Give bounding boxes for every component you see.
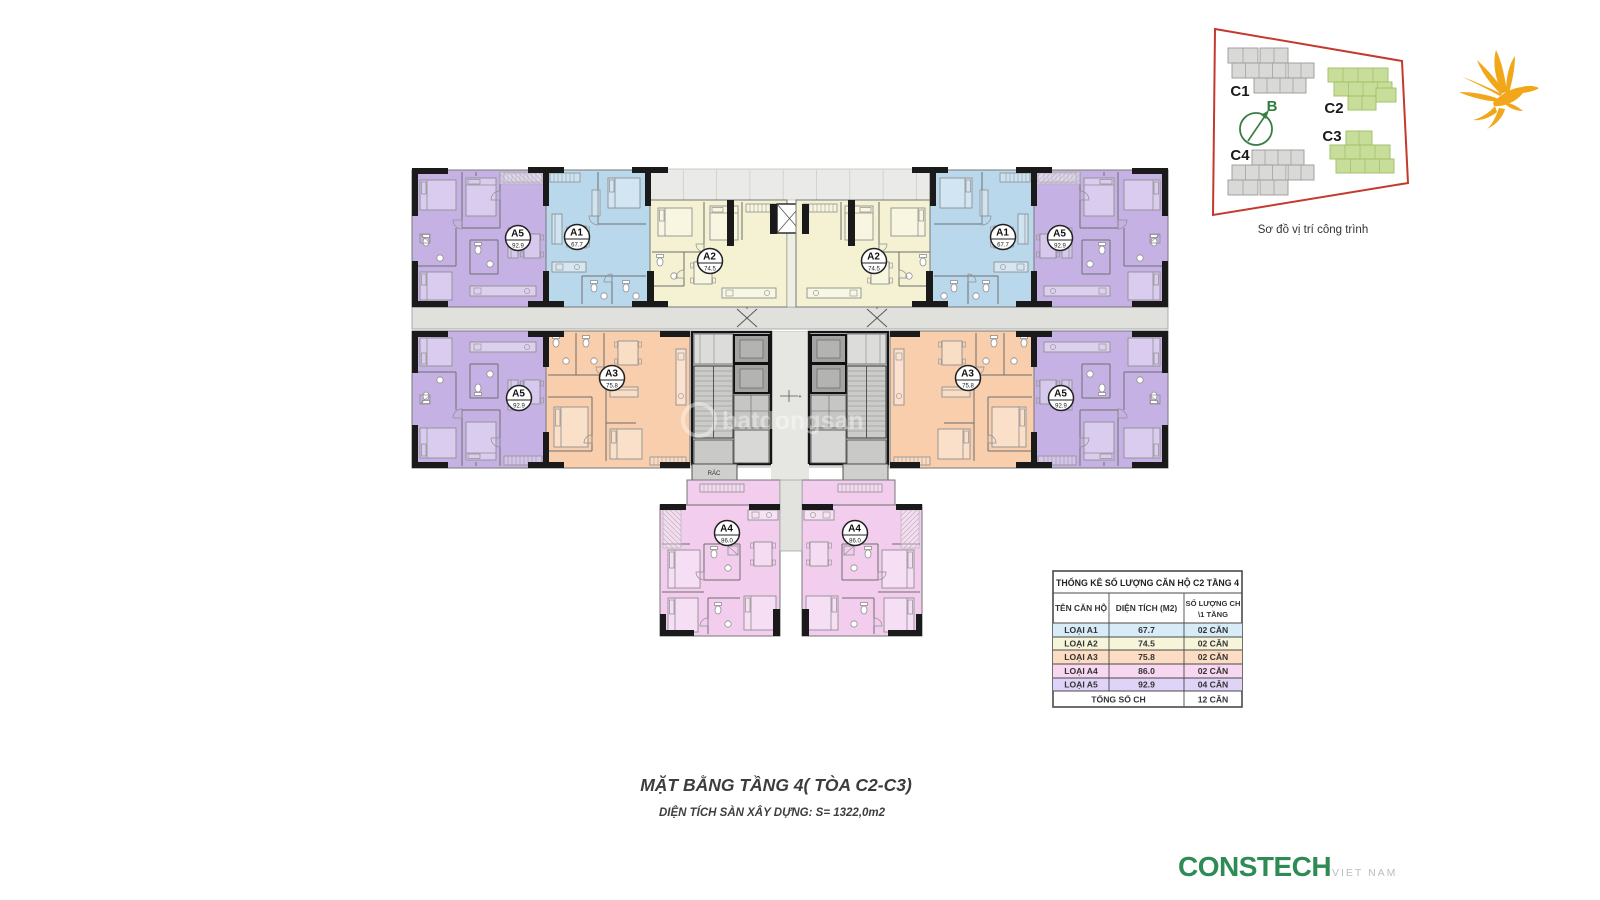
- svg-text:\1 TẦNG: \1 TẦNG: [1198, 609, 1228, 619]
- svg-text:A5: A5: [512, 389, 525, 400]
- svg-text:C4: C4: [1230, 147, 1250, 164]
- svg-text:67.7: 67.7: [1138, 625, 1155, 635]
- svg-text:92.9: 92.9: [1138, 680, 1155, 690]
- svg-text:LOẠI A5: LOẠI A5: [1064, 680, 1098, 690]
- svg-text:02 CĂN: 02 CĂN: [1198, 652, 1229, 662]
- svg-text:LOẠI A2: LOẠI A2: [1064, 639, 1098, 649]
- svg-text:VIET NAM: VIET NAM: [1332, 867, 1397, 879]
- svg-text:86.0: 86.0: [1138, 666, 1155, 676]
- svg-text:DIỆN TÍCH (M2): DIỆN TÍCH (M2): [1116, 602, 1178, 613]
- svg-text:THỐNG KÊ SỐ LƯỢNG CĂN HỘ C2 TẦ: THỐNG KÊ SỐ LƯỢNG CĂN HỘ C2 TẦNG 4: [1056, 577, 1239, 588]
- svg-text:C1: C1: [1230, 83, 1249, 100]
- svg-text:86.0: 86.0: [849, 539, 861, 545]
- svg-text:C3: C3: [1322, 128, 1341, 145]
- svg-text:86.0: 86.0: [721, 539, 733, 545]
- svg-text:75.8: 75.8: [1138, 652, 1155, 662]
- svg-text:A2: A2: [703, 252, 716, 263]
- svg-text:92.9: 92.9: [1055, 404, 1067, 410]
- svg-text:92.9: 92.9: [1054, 244, 1066, 250]
- svg-text:12 CĂN: 12 CĂN: [1198, 695, 1229, 705]
- svg-text:A5: A5: [1054, 389, 1067, 400]
- svg-text:batdongsan: batdongsan: [722, 407, 864, 435]
- svg-text:A5: A5: [1053, 229, 1066, 240]
- svg-text:SỐ LƯỢNG CH: SỐ LƯỢNG CH: [1186, 598, 1241, 608]
- svg-text:74.5: 74.5: [704, 267, 716, 273]
- svg-text:A3: A3: [961, 369, 974, 380]
- svg-text:B: B: [1267, 98, 1278, 115]
- svg-text:75.8: 75.8: [962, 384, 974, 390]
- svg-text:A4: A4: [848, 524, 861, 535]
- svg-text:A3: A3: [605, 369, 618, 380]
- svg-text:TÊN CĂN HỘ: TÊN CĂN HỘ: [1055, 602, 1108, 613]
- svg-text:02 CĂN: 02 CĂN: [1198, 625, 1229, 635]
- svg-text:DIỆN TÍCH SÀN XÂY DỰNG: S= 132: DIỆN TÍCH SÀN XÂY DỰNG: S= 1322,0m2: [659, 806, 886, 819]
- svg-text:75.8: 75.8: [606, 384, 618, 390]
- svg-text:A4: A4: [720, 524, 733, 535]
- svg-text:02 CĂN: 02 CĂN: [1198, 639, 1229, 649]
- svg-text:A2: A2: [867, 252, 880, 263]
- svg-text:A1: A1: [570, 228, 583, 239]
- svg-text:LOẠI A4: LOẠI A4: [1064, 666, 1098, 676]
- svg-text:LOẠI A3: LOẠI A3: [1064, 652, 1098, 662]
- svg-text:92.9: 92.9: [512, 244, 524, 250]
- svg-text:67.7: 67.7: [997, 243, 1009, 249]
- svg-text:LOẠI A1: LOẠI A1: [1064, 625, 1098, 635]
- svg-text:67.7: 67.7: [571, 243, 583, 249]
- svg-text:MẶT BẰNG TẦNG 4( TÒA C2-C3): MẶT BẰNG TẦNG 4( TÒA C2-C3): [640, 774, 912, 795]
- svg-text:02 CĂN: 02 CĂN: [1198, 666, 1229, 676]
- svg-text:A5: A5: [511, 229, 524, 240]
- svg-text:74.5: 74.5: [868, 267, 880, 273]
- svg-text:TỔNG SỐ CH: TỔNG SỐ CH: [1091, 694, 1145, 705]
- svg-text:C2: C2: [1324, 100, 1343, 117]
- svg-text:A1: A1: [996, 228, 1009, 239]
- svg-text:CONSTECH: CONSTECH: [1178, 851, 1331, 882]
- svg-text:+: +: [799, 394, 802, 400]
- svg-text:92.9: 92.9: [513, 404, 525, 410]
- svg-text:74.5: 74.5: [1138, 639, 1155, 649]
- svg-text:04 CĂN: 04 CĂN: [1198, 680, 1229, 690]
- svg-text:Sơ đồ vị trí công trình: Sơ đồ vị trí công trình: [1258, 224, 1368, 236]
- svg-text:RÁC: RÁC: [708, 470, 721, 477]
